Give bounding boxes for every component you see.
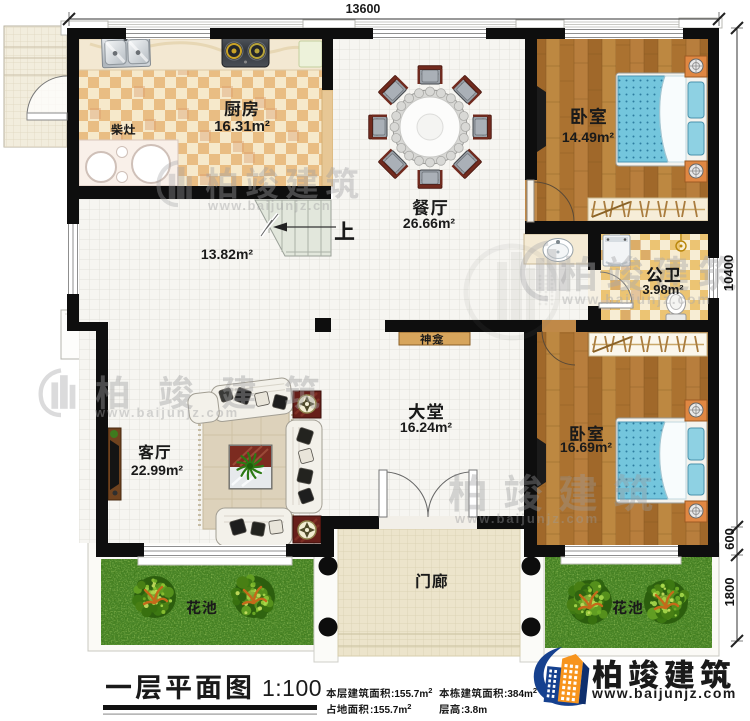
svg-text:16.31m²: 16.31m² <box>214 118 270 135</box>
svg-text:1800: 1800 <box>722 578 737 607</box>
svg-text:14.49m²: 14.49m² <box>562 129 614 145</box>
svg-text:www.baijunjz.com: www.baijunjz.com <box>561 291 712 307</box>
svg-text:13600: 13600 <box>346 2 381 16</box>
svg-text:www.baijunjz.com: www.baijunjz.com <box>94 405 239 420</box>
svg-text:600: 600 <box>722 528 737 550</box>
svg-text::155.7m2: :155.7m2 <box>370 702 411 716</box>
svg-text::3.8m: :3.8m <box>461 705 487 716</box>
svg-text:13.82m²: 13.82m² <box>201 246 253 262</box>
svg-text:3.98m²: 3.98m² <box>642 282 684 297</box>
svg-text:22.99m²: 22.99m² <box>131 462 183 478</box>
svg-text:16.69m²: 16.69m² <box>560 439 612 455</box>
svg-text:10400: 10400 <box>721 255 736 291</box>
svg-text:16.24m²: 16.24m² <box>400 419 452 435</box>
svg-text::155.7m2: :155.7m2 <box>391 686 432 700</box>
svg-text:www.baijunjz.cn: www.baijunjz.cn <box>207 198 331 213</box>
svg-text:www.baijunjz.com: www.baijunjz.com <box>454 511 599 526</box>
svg-text:26.66m²: 26.66m² <box>403 215 455 231</box>
svg-text:www.baijunjz.com: www.baijunjz.com <box>591 685 737 701</box>
svg-text::384m2: :384m2 <box>504 686 537 700</box>
svg-text:1:100: 1:100 <box>262 675 322 701</box>
